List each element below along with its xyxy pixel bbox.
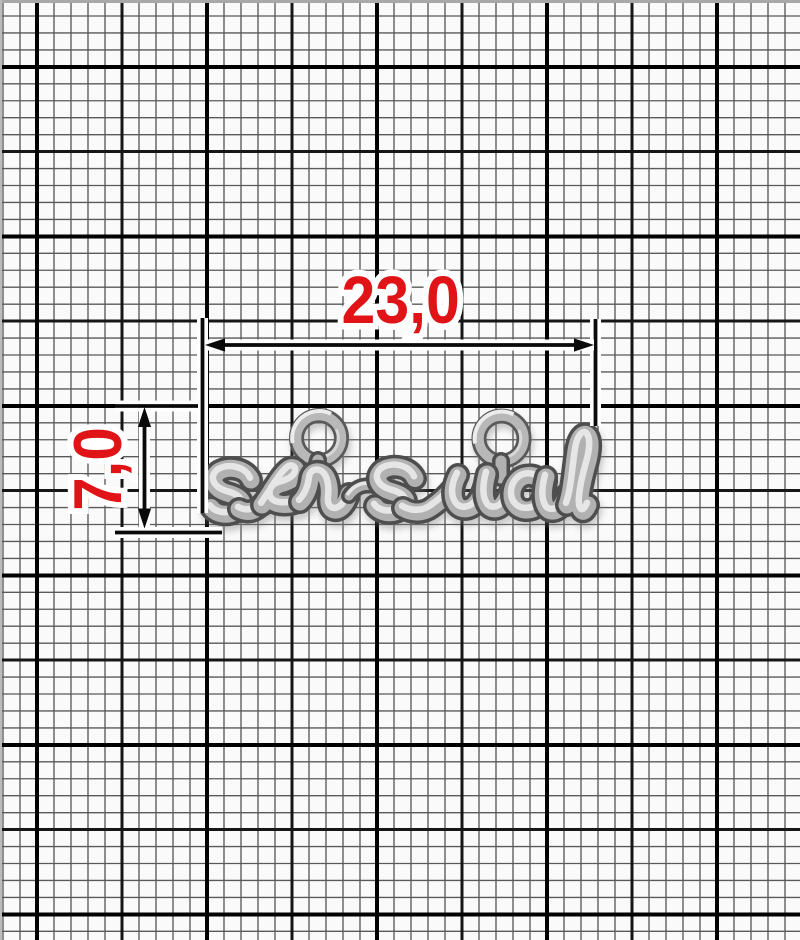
svg-text:7,0: 7,0 — [60, 427, 136, 511]
svg-text:23,0: 23,0 — [342, 262, 460, 337]
